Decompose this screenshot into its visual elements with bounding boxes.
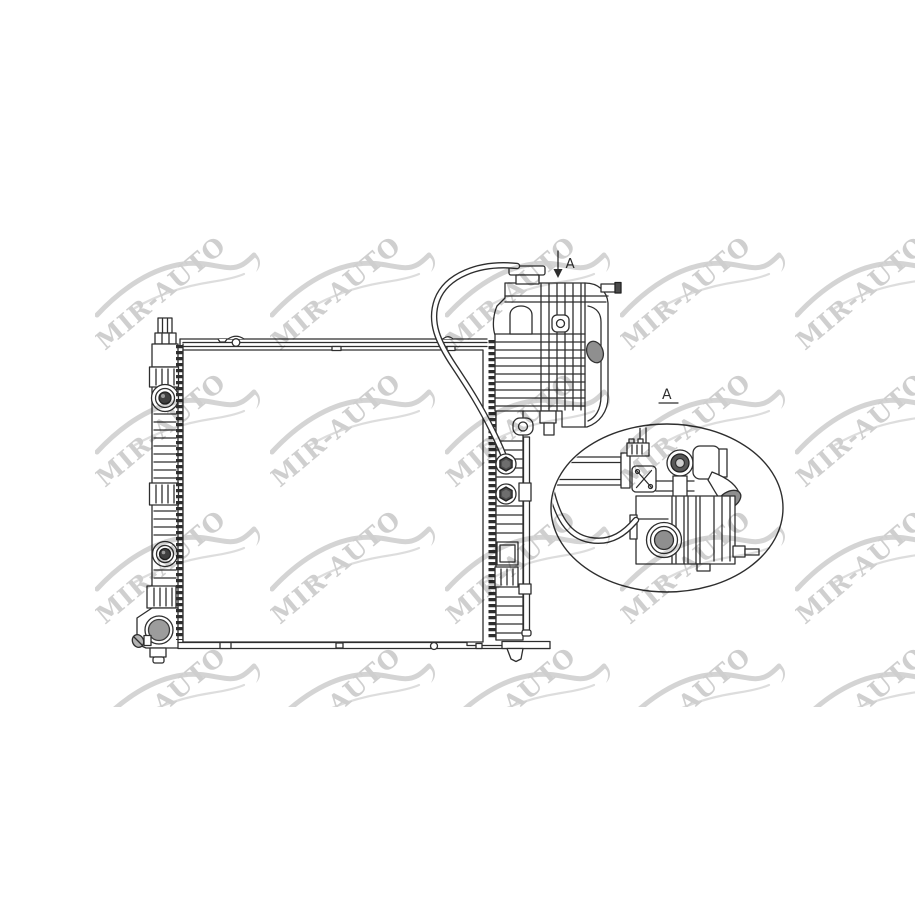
watermark-tile <box>790 367 915 492</box>
watermark-tile <box>790 230 915 355</box>
watermark-tile <box>790 641 915 766</box>
watermark-tile <box>90 504 260 629</box>
watermark-tile <box>615 230 785 355</box>
watermark-tile <box>615 367 785 492</box>
catalog-image: A A MIR-AUTO <box>0 0 915 915</box>
watermark-tile <box>440 504 610 629</box>
watermark-tile <box>615 504 785 629</box>
watermark-layer: MIR-AUTO <box>0 0 915 915</box>
watermark-tile <box>615 641 785 766</box>
watermark-tile <box>790 504 915 629</box>
watermark-tile <box>440 641 610 766</box>
watermark-tile <box>90 230 260 355</box>
watermark-tile <box>440 230 610 355</box>
watermark-tile <box>265 504 435 629</box>
watermark-tile <box>440 367 610 492</box>
watermark-tile <box>265 641 435 766</box>
watermark-tile <box>90 641 260 766</box>
watermark-tile <box>265 230 435 355</box>
watermark-tile <box>90 367 260 492</box>
watermark-tile <box>265 367 435 492</box>
